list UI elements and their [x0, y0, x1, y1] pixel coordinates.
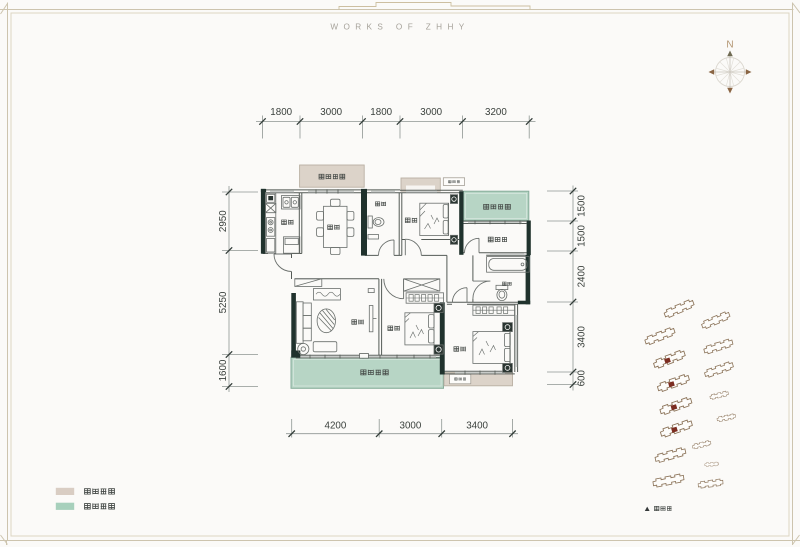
svg-text:5250: 5250: [218, 291, 229, 313]
svg-text:3400: 3400: [577, 326, 588, 348]
svg-text:3200: 3200: [485, 107, 507, 118]
svg-text:3000: 3000: [320, 107, 342, 118]
svg-text:3400: 3400: [466, 421, 488, 432]
svg-text:2400: 2400: [577, 265, 588, 287]
svg-text:1600: 1600: [218, 359, 229, 381]
svg-text:1500: 1500: [577, 225, 588, 247]
svg-text:WORKS OF ZHHY: WORKS OF ZHHY: [330, 23, 469, 32]
svg-text:1800: 1800: [270, 107, 292, 118]
svg-text:N: N: [726, 40, 733, 51]
svg-text:600: 600: [577, 369, 588, 386]
svg-text:2950: 2950: [218, 210, 229, 232]
svg-text:1800: 1800: [370, 107, 392, 118]
svg-text:1500: 1500: [577, 195, 588, 217]
svg-text:3000: 3000: [420, 107, 442, 118]
svg-text:3000: 3000: [400, 421, 422, 432]
svg-text:4200: 4200: [325, 421, 347, 432]
